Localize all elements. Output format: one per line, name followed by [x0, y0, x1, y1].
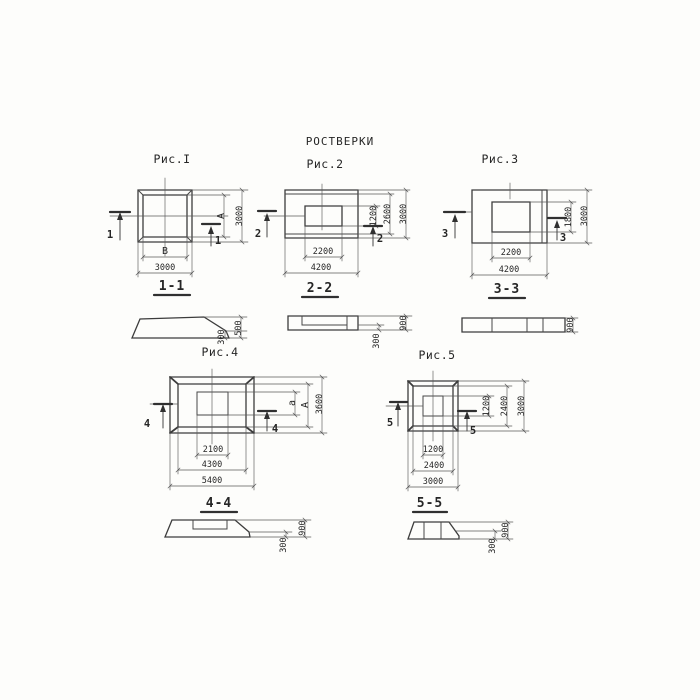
fig3-section-outline — [462, 318, 565, 332]
drawing-sheet: РОСТВЕРКИ Рис.I В 3000 А 3000 1 1 1-1 50… — [0, 0, 700, 700]
fig4-label: Рис.4 — [201, 345, 238, 359]
fig2-section-mark-bars — [258, 211, 382, 226]
fig5-section-mark-left: 5 — [387, 417, 393, 429]
fig2-label: Рис.2 — [306, 157, 343, 171]
figure-1: Рис.I В 3000 А 3000 1 1 1-1 500 300 — [107, 152, 248, 345]
fig4-height-dim-outer: 3600 — [315, 394, 325, 414]
fig3-section-segments — [492, 318, 543, 332]
fig1-section-label: 1-1 — [159, 279, 185, 294]
fig3-section-mark-bars — [444, 212, 566, 218]
fig1-height-dim-outer: 3000 — [235, 206, 245, 226]
drawing-canvas: РОСТВЕРКИ Рис.I В 3000 А 3000 1 1 1-1 50… — [0, 0, 700, 700]
fig2-section-mark-left: 2 — [255, 228, 261, 240]
fig1-section-dim-full: 500 — [234, 320, 244, 335]
fig4-section-dim-step: 300 — [279, 537, 289, 552]
fig4-height-dim-inner: а — [287, 400, 298, 406]
fig5-section-label: 5-5 — [417, 496, 443, 511]
fig3-plan-outline — [472, 190, 547, 243]
fig5-section-dim-full: 900 — [501, 522, 511, 537]
fig4-section-mark-right: 4 — [272, 423, 278, 435]
fig3-height-dim-outer: 3000 — [580, 206, 590, 226]
fig1-label: Рис.I — [153, 152, 190, 166]
fig4-plan-socket — [197, 392, 228, 415]
fig4-height-dim-mid: А — [300, 402, 311, 408]
fig2-dim-lines — [283, 188, 410, 277]
fig2-section-dim-step: 300 — [372, 333, 382, 348]
fig3-width-dim-inner: 2200 — [501, 248, 521, 258]
fig5-width-dim-inner: 1200 — [423, 445, 443, 455]
fig2-height-dim-inner: 1200 — [369, 206, 379, 226]
fig5-height-dim-outer: 3000 — [517, 396, 527, 416]
fig4-width-dim-mid: 4300 — [202, 460, 222, 470]
fig4-section-mark-bars — [154, 404, 276, 411]
fig1-section-dim-step: 300 — [217, 329, 227, 344]
fig3-section-mark-right: 3 — [560, 232, 566, 244]
fig2-section-notch — [302, 316, 347, 330]
fig1-section-mark-right: 1 — [215, 235, 221, 247]
figure-4: Рис.4 а А 3600 2100 4300 5400 4 4 4-4 90… — [144, 345, 327, 553]
sheet-title: РОСТВЕРКИ — [306, 135, 375, 148]
fig5-section-dim-step: 300 — [488, 538, 498, 553]
fig5-height-dim-mid: 2400 — [500, 396, 510, 416]
fig5-section-mark-right: 5 — [470, 425, 476, 437]
fig3-dim-lines — [470, 188, 592, 279]
fig2-section-mark-arrows — [267, 219, 373, 246]
figure-3: Рис.3 1800 3000 2200 4200 3 3 3-3 900 — [442, 152, 592, 334]
fig4-section-dim-full: 900 — [298, 520, 308, 535]
fig5-section-segments — [424, 522, 441, 539]
fig5-label: Рис.5 — [418, 348, 455, 362]
fig2-centerlines — [264, 184, 322, 230]
fig1-section-outline — [132, 317, 229, 338]
fig3-arrowheads — [452, 214, 560, 228]
fig2-height-dim-mid: 2600 — [383, 204, 393, 224]
fig4-width-dim-outer: 5400 — [202, 476, 222, 486]
fig5-section-outline — [408, 522, 459, 539]
fig4-section-label: 4-4 — [206, 496, 232, 511]
fig1-width-dim-outer: 3000 — [155, 263, 175, 273]
fig3-label: Рис.3 — [481, 152, 518, 166]
fig2-section-dim-full: 900 — [399, 315, 409, 330]
figure-5: Рис.5 1200 2400 3000 1200 2400 3000 5 5 … — [386, 348, 529, 554]
fig3-section-dim-full: 900 — [566, 317, 576, 332]
fig2-height-dim-outer: 3000 — [399, 204, 409, 224]
fig5-height-dim-inner: 1200 — [482, 396, 492, 416]
fig1-arrowheads — [117, 212, 214, 234]
fig1-section-mark-left: 1 — [107, 229, 113, 241]
fig5-width-dim-mid: 2400 — [424, 461, 444, 471]
fig3-width-dim-outer: 4200 — [499, 265, 519, 275]
fig2-width-dim-inner: 2200 — [313, 247, 333, 257]
fig3-section-label: 3-3 — [494, 282, 520, 297]
figure-2: Рис.2 1200 2600 3000 2200 4200 2 2 2-2 9… — [255, 157, 412, 349]
fig4-section-mark-left: 4 — [144, 418, 150, 430]
fig2-plan-steps — [285, 194, 358, 234]
fig4-width-dim-inner: 2100 — [203, 445, 223, 455]
fig4-section-notch — [193, 520, 227, 529]
fig5-width-dim-outer: 3000 — [423, 477, 443, 487]
fig2-section-label: 2-2 — [307, 281, 333, 296]
fig2-plan-outline — [285, 190, 358, 238]
fig2-width-dim-outer: 4200 — [311, 263, 331, 273]
fig3-section-mark-left: 3 — [442, 228, 448, 240]
fig1-width-dim-inner: В — [162, 246, 168, 257]
fig1-height-dim-inner: А — [216, 213, 227, 219]
fig2-section-mark-right: 2 — [377, 233, 383, 245]
